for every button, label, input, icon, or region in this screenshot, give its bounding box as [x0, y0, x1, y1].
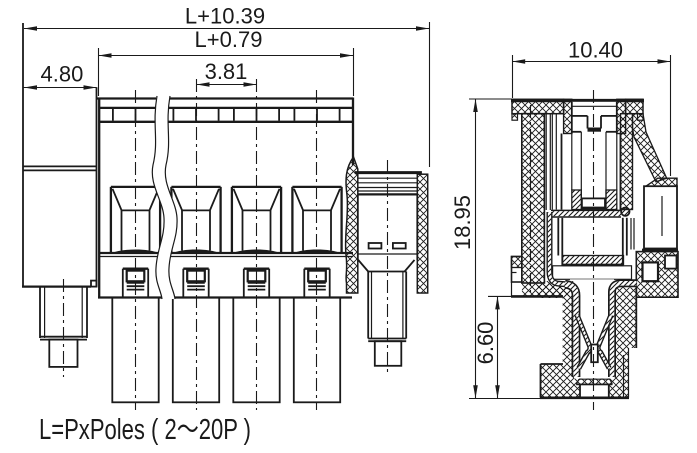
svg-text:6.60: 6.60	[473, 322, 498, 365]
svg-text:L=PxPoles ( 2～20P ): L=PxPoles ( 2～20P )	[39, 414, 251, 446]
svg-text:L+10.39: L+10.39	[185, 4, 265, 29]
svg-text:18.95: 18.95	[450, 195, 475, 250]
svg-text:L+0.79: L+0.79	[195, 27, 263, 52]
svg-text:4.80: 4.80	[40, 62, 83, 87]
svg-text:3.81: 3.81	[205, 59, 248, 84]
svg-text:10.40: 10.40	[568, 38, 623, 63]
